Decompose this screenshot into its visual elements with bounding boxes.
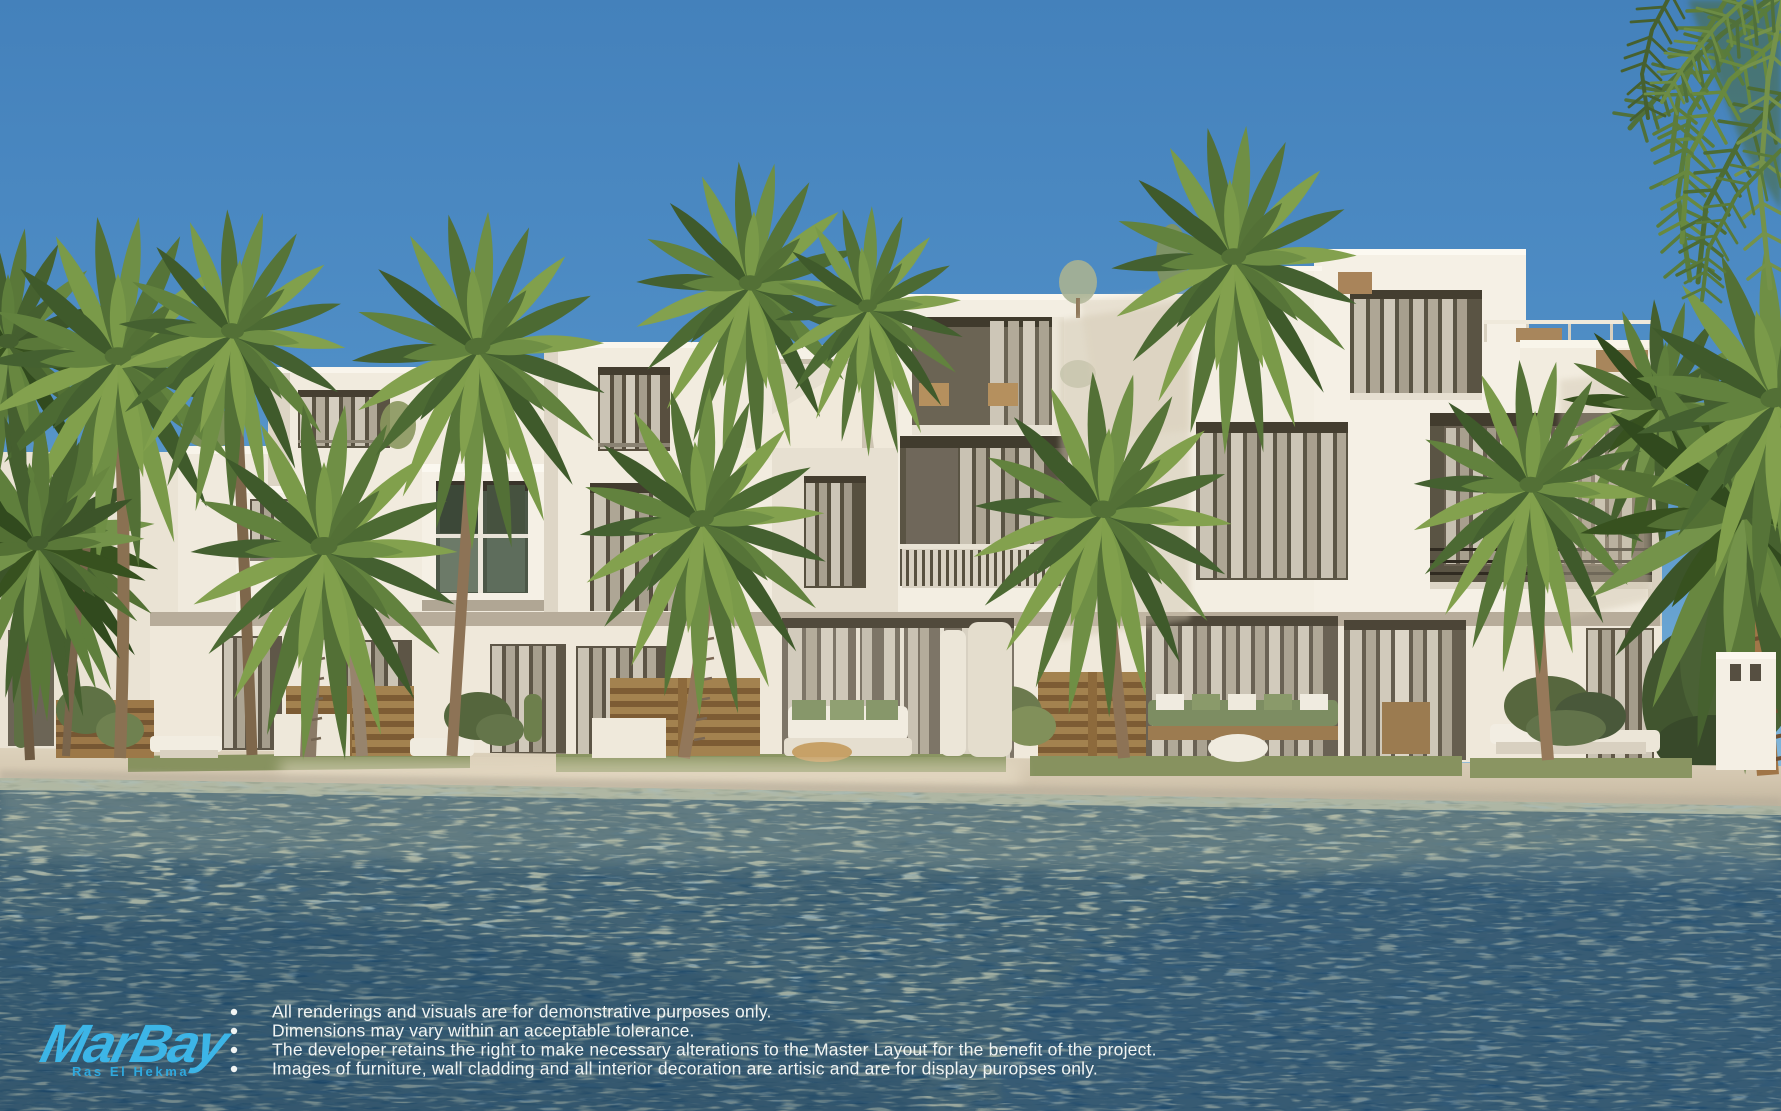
- svg-text:Dimensions may vary within an: Dimensions may vary within an acceptable…: [272, 1021, 695, 1041]
- svg-text:Ras El Hekma: Ras El Hekma: [72, 1064, 189, 1079]
- svg-text:Images of furniture, wall clad: Images of furniture, wall cladding and a…: [272, 1059, 1098, 1079]
- svg-text:The developer retains the righ: The developer retains the right to make …: [272, 1040, 1157, 1060]
- svg-text:All renderings and visuals are: All renderings and visuals are for demon…: [272, 1002, 772, 1022]
